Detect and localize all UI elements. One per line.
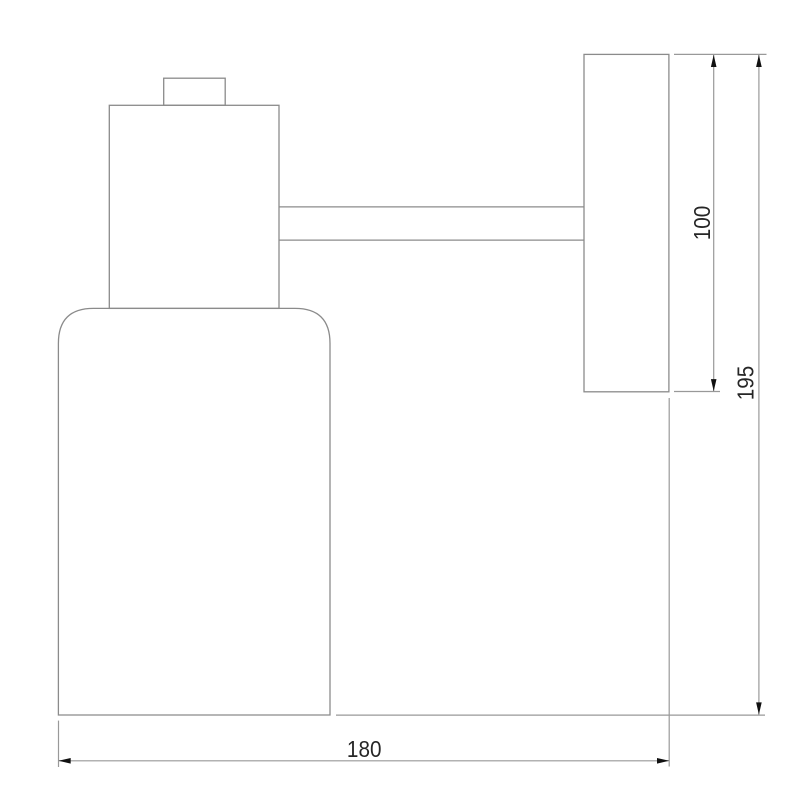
svg-text:180: 180: [347, 736, 382, 762]
svg-text:195: 195: [733, 366, 759, 401]
svg-text:100: 100: [689, 206, 715, 241]
